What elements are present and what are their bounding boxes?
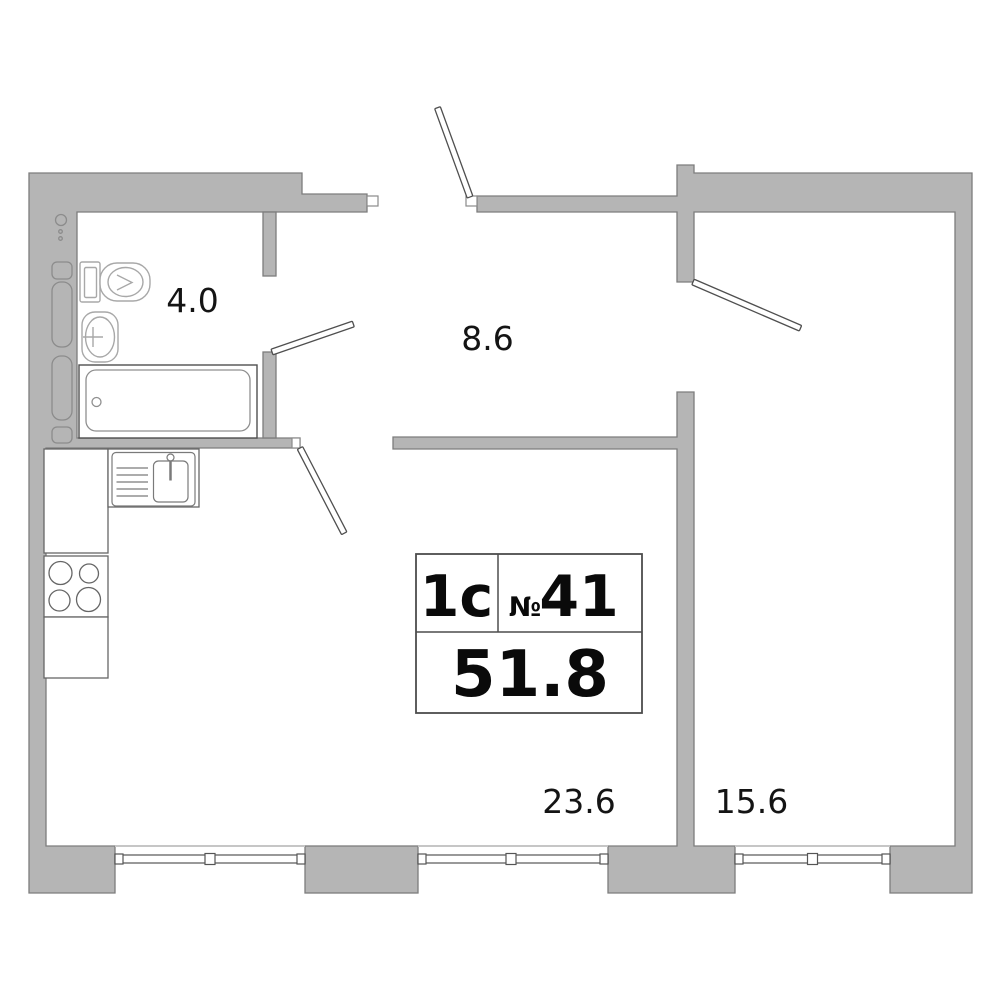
door-frame bbox=[367, 196, 378, 206]
floor-plan: 4.0 8.6 23.6 15.6 1с № 41 51.8 bbox=[0, 0, 1000, 1000]
unit-number-sign: № bbox=[509, 592, 541, 623]
room-area-label-bedroom: 15.6 bbox=[715, 782, 788, 821]
window bbox=[115, 846, 305, 865]
living-room-door bbox=[292, 438, 347, 535]
door-leaf bbox=[435, 107, 473, 198]
room-area-label-bathroom: 4.0 bbox=[166, 281, 218, 320]
window bbox=[735, 846, 890, 865]
windows bbox=[115, 846, 890, 865]
unit-total-area: 51.8 bbox=[451, 638, 609, 712]
door-leaf bbox=[692, 279, 802, 331]
kitchen-cabinet bbox=[44, 449, 108, 553]
wall-bathroom-right-upper bbox=[263, 212, 276, 276]
bathroom-door bbox=[271, 321, 354, 355]
room-area-label-hallway: 8.6 bbox=[461, 319, 513, 358]
unit-info-box: 1с № 41 51.8 bbox=[416, 554, 642, 713]
washbasin-icon bbox=[82, 312, 118, 362]
entry-door bbox=[367, 107, 477, 206]
doors bbox=[271, 107, 802, 535]
kitchen-cabinet bbox=[44, 617, 108, 678]
door-frame bbox=[292, 438, 300, 448]
bedroom-door bbox=[692, 279, 802, 331]
walls bbox=[29, 165, 972, 893]
door-leaf bbox=[271, 321, 354, 355]
kitchen-fixtures bbox=[44, 449, 199, 678]
window bbox=[418, 846, 608, 865]
toilet-icon bbox=[80, 262, 150, 302]
room-labels: 4.0 8.6 23.6 15.6 bbox=[166, 281, 788, 821]
wall-bathroom-right-lower bbox=[263, 352, 276, 438]
wall-bottom-pier bbox=[305, 846, 418, 893]
unit-number: 41 bbox=[539, 564, 618, 630]
unit-type-label: 1с bbox=[420, 564, 493, 630]
door-leaf bbox=[297, 447, 347, 535]
bathtub-icon bbox=[79, 365, 257, 438]
room-area-label-kitchen-living: 23.6 bbox=[542, 782, 615, 821]
floor-plan-canvas: 4.0 8.6 23.6 15.6 1с № 41 51.8 bbox=[0, 0, 1000, 1000]
